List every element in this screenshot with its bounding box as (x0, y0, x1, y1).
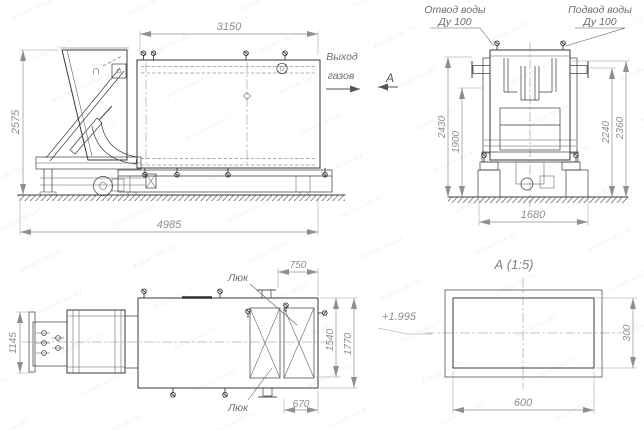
dim-3150-text: 3150 (217, 21, 242, 33)
ground-front (18, 195, 345, 201)
elevation-mark-text: +1.995 (382, 311, 417, 323)
drawing-page: kotlam-tec.kz (0, 0, 644, 430)
dim-670-text: 670 (293, 399, 310, 410)
dim-750-text: 750 (290, 260, 307, 271)
gas-outlet-line2: газов (328, 70, 355, 82)
water-inlet-line2: Ду 100 (582, 16, 616, 28)
ground-end (448, 197, 628, 203)
dim-1540-text: 1540 (325, 328, 336, 351)
dim-2430-text: 2430 (437, 115, 448, 139)
water-outlet-line1: Отвод воды (424, 4, 486, 16)
dim-2240-text: 2240 (601, 120, 612, 144)
gas-outlet-line1: Выход (326, 51, 358, 63)
dim-2360-text: 2360 (615, 116, 626, 140)
dim-1680-text: 1680 (521, 209, 546, 221)
section-mark-text: А (385, 71, 394, 85)
dim-1770-text: 1770 (343, 332, 354, 355)
technical-drawing-canvas: kotlam-tec.kz (0, 0, 644, 430)
dim-1145-text: 1145 (8, 332, 19, 354)
dim-300-text: 300 (622, 324, 633, 341)
water-outlet-line2: Ду 100 (437, 16, 471, 28)
water-inlet-line1: Подвод воды (568, 4, 632, 16)
dim-600-text: 600 (514, 397, 533, 409)
dim-2575-text: 2575 (10, 109, 22, 135)
hatch-label-top-text: Люк (227, 272, 249, 284)
dim-4985-text: 4985 (157, 219, 182, 231)
hatch-label-bottom-text: Люк (227, 402, 249, 414)
section-title: А (1:5) (493, 257, 533, 272)
dim-1900-text: 1900 (451, 130, 462, 153)
hopper-mark: ∩ (92, 63, 101, 77)
